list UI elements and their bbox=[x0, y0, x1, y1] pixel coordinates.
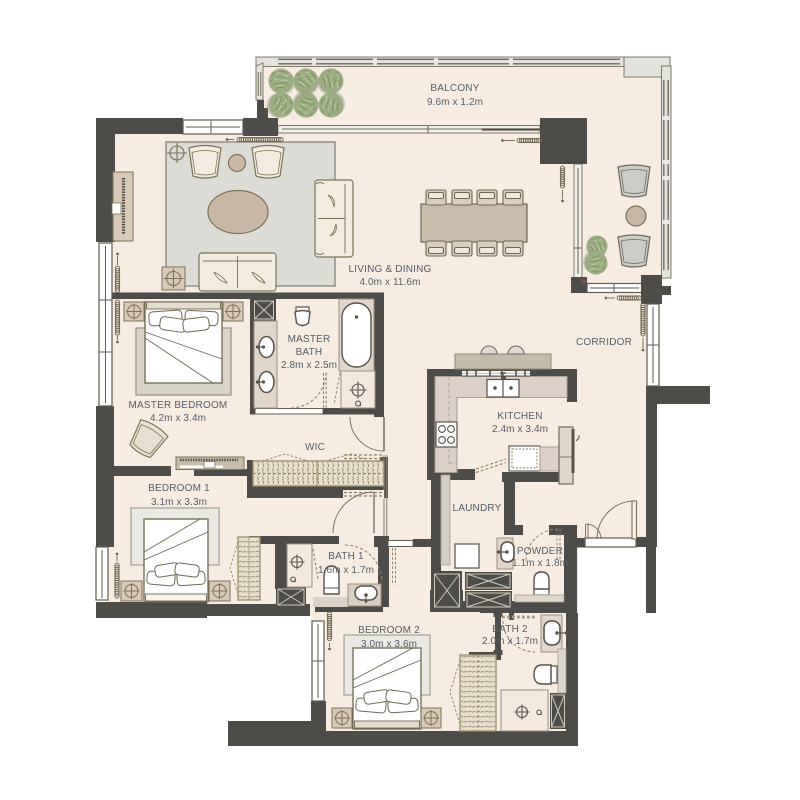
svg-text:2.4m x 3.4m: 2.4m x 3.4m bbox=[492, 424, 548, 435]
svg-text:BALCONY: BALCONY bbox=[430, 83, 479, 94]
svg-text:9.6m x 1.2m: 9.6m x 1.2m bbox=[427, 97, 483, 108]
svg-text:BEDROOM 1: BEDROOM 1 bbox=[148, 483, 210, 494]
svg-text:LIVING & DINING: LIVING & DINING bbox=[348, 264, 431, 275]
svg-text:LAUNDRY: LAUNDRY bbox=[452, 503, 501, 514]
svg-text:CORRIDOR: CORRIDOR bbox=[576, 337, 632, 348]
svg-text:BATH 2: BATH 2 bbox=[492, 624, 528, 635]
svg-text:3.1m x 3.3m: 3.1m x 3.3m bbox=[151, 497, 207, 508]
svg-text:2.0m x 1.7m: 2.0m x 1.7m bbox=[482, 636, 538, 647]
svg-text:2.8m x 2.5m: 2.8m x 2.5m bbox=[281, 360, 337, 371]
svg-text:1.1m x 1.8m: 1.1m x 1.8m bbox=[512, 558, 568, 569]
svg-text:1.6m x 1.7m: 1.6m x 1.7m bbox=[318, 565, 374, 576]
svg-text:POWDER: POWDER bbox=[517, 546, 563, 557]
svg-text:MASTER BEDROOM: MASTER BEDROOM bbox=[129, 400, 228, 411]
svg-text:BEDROOM 2: BEDROOM 2 bbox=[358, 625, 420, 636]
svg-text:4.0m x 11.6m: 4.0m x 11.6m bbox=[359, 277, 420, 288]
svg-text:3.0m x 3.6m: 3.0m x 3.6m bbox=[361, 639, 417, 650]
svg-text:BATH: BATH bbox=[296, 347, 323, 358]
svg-text:MASTER: MASTER bbox=[288, 334, 331, 345]
svg-text:WIC: WIC bbox=[305, 442, 325, 453]
svg-text:KITCHEN: KITCHEN bbox=[497, 411, 542, 422]
svg-text:4.2m x 3.4m: 4.2m x 3.4m bbox=[150, 413, 206, 424]
svg-text:BATH 1: BATH 1 bbox=[328, 551, 364, 562]
